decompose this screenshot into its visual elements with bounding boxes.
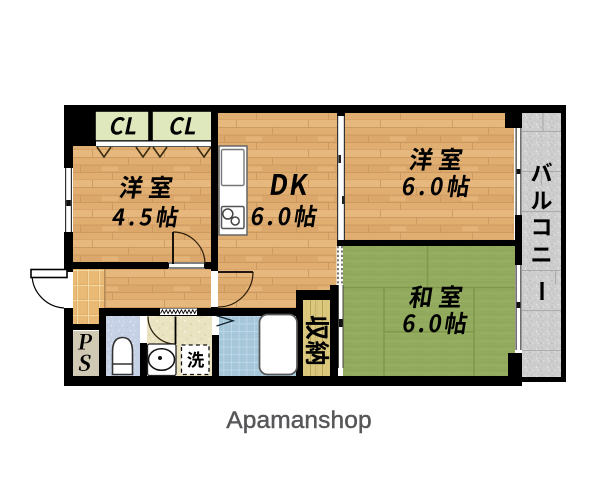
svg-text:Apamanshop: Apamanshop: [226, 407, 371, 434]
